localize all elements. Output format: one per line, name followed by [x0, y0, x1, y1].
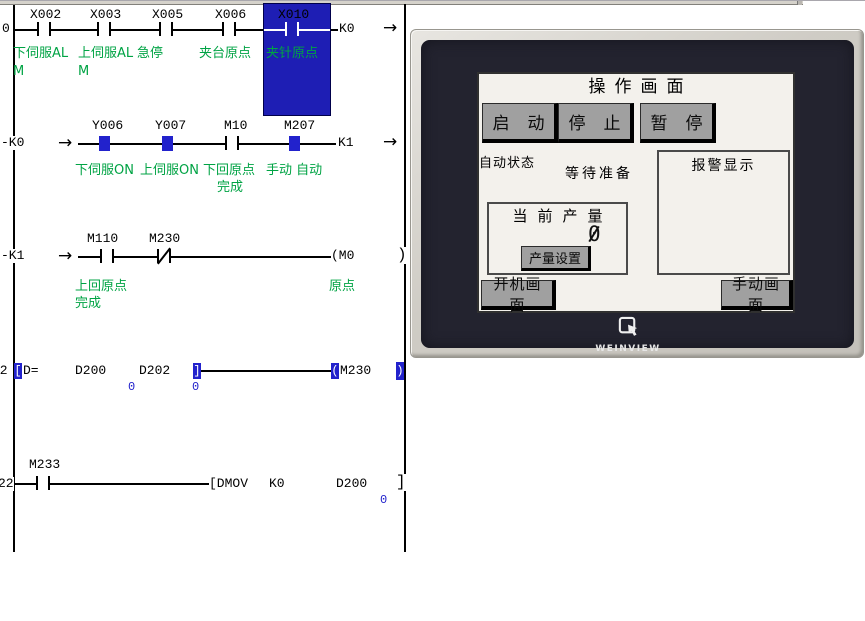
contact-nc-m230[interactable] — [157, 249, 171, 263]
toolbar-bottom-strip — [0, 1, 803, 5]
wire — [331, 29, 338, 31]
alarm-display-title: 报警显示 — [659, 155, 788, 175]
device-label: X010 — [278, 8, 309, 22]
contact-x002[interactable] — [37, 22, 51, 36]
start-button[interactable]: 启动 — [482, 103, 558, 143]
monitor-value: 0 — [380, 494, 387, 507]
contact-m10[interactable] — [225, 136, 239, 150]
coil-m0[interactable]: (M0 — [331, 249, 354, 263]
wire — [78, 256, 332, 258]
production-set-button[interactable]: 产量设置 — [521, 246, 591, 271]
weinview-logo-icon — [617, 316, 640, 339]
comment-label: 下回原点 — [203, 163, 255, 178]
monitor-value: 0 — [128, 381, 135, 394]
brand-logo: WEINVIEW — [568, 316, 688, 354]
coil-m230[interactable]: M230 — [340, 364, 371, 378]
brand-name: WEINVIEW — [568, 344, 688, 354]
device-label: M10 — [224, 119, 247, 133]
rung-number: 12 — [0, 364, 8, 378]
comment-label: M — [78, 64, 89, 79]
pointer-label: K1 — [338, 136, 354, 150]
comment-label: 上伺服ON — [140, 163, 199, 178]
comment-label: 上伺服AL — [78, 46, 133, 61]
monitor-value: 0 — [192, 381, 199, 394]
energized-contact-y006[interactable] — [99, 136, 110, 151]
operand: D200 — [75, 364, 106, 378]
operand: D202 — [139, 364, 170, 378]
comment-label: 手动 自动 — [266, 163, 322, 178]
status-value: 等待准备 — [565, 163, 633, 183]
comment-label: M — [13, 64, 24, 79]
stop-button[interactable]: 停止 — [558, 103, 634, 143]
wire — [201, 370, 331, 372]
rung-number: 22 — [0, 477, 14, 491]
rung-end-bracket: ] — [396, 474, 406, 491]
toolbar-tick — [797, 1, 802, 5]
contact-m110[interactable] — [100, 249, 114, 263]
pointer-label: K0 — [339, 22, 355, 36]
hmi-screen: 操作画面 启动 停止 暂停 自动状态 等待准备 报警显示 当前产量 0 产量设置… — [477, 72, 795, 313]
pointer-label: -K0 — [1, 136, 24, 150]
comment-label: 下伺服ON — [75, 163, 134, 178]
hmi-bezel: 操作画面 启动 停止 暂停 自动状态 等待准备 报警显示 当前产量 0 产量设置… — [421, 40, 854, 348]
coil-open-paren[interactable]: ( — [331, 363, 339, 379]
comment-label: 完成 — [217, 180, 243, 195]
comment-label: 上回原点 — [75, 279, 127, 294]
startup-screen-button[interactable]: 开机画面 — [481, 280, 556, 310]
alarm-display-box: 报警显示 — [657, 150, 790, 275]
continuation-arrow-icon: → — [58, 248, 72, 265]
comment-label: 夹台原点 — [199, 46, 251, 61]
device-label: M207 — [284, 119, 315, 133]
contact-x005[interactable] — [159, 22, 173, 36]
device-label: X006 — [215, 8, 246, 22]
contact-x010[interactable] — [285, 22, 299, 36]
rung-number: 0 — [2, 22, 10, 36]
screen-title: 操作画面 — [479, 78, 793, 96]
rung-end-bracket: ) — [397, 247, 407, 264]
hmi-panel: 操作画面 启动 停止 暂停 自动状态 等待准备 报警显示 当前产量 0 产量设置… — [410, 29, 864, 358]
contact-m233[interactable] — [36, 476, 50, 490]
pause-button[interactable]: 暂停 — [640, 103, 716, 143]
auto-status-label: 自动状态 — [479, 152, 535, 171]
rung-end-bracket: ) — [396, 362, 404, 380]
operand: K0 — [269, 477, 285, 491]
contact-x003[interactable] — [97, 22, 111, 36]
production-title: 当前产量 — [489, 205, 626, 226]
comment-label: 完成 — [75, 296, 101, 311]
device-label: X005 — [152, 8, 183, 22]
contact-x006[interactable] — [222, 22, 236, 36]
continuation-arrow-icon: → — [383, 134, 397, 151]
compare-open-bracket[interactable]: [ — [14, 363, 22, 379]
manual-screen-button[interactable]: 手动画面 — [721, 280, 793, 310]
device-label: M110 — [87, 232, 118, 246]
device-label: X003 — [90, 8, 121, 22]
left-power-rail — [13, 5, 15, 552]
energized-contact-m207[interactable] — [289, 136, 300, 151]
compare-close-bracket[interactable]: ] — [193, 363, 201, 379]
continuation-arrow-icon: → — [58, 135, 72, 152]
device-label: Y006 — [92, 119, 123, 133]
energized-contact-y007[interactable] — [162, 136, 173, 151]
right-boundary-rail — [404, 4, 406, 552]
production-value: 0 — [588, 224, 601, 245]
compare-mnemonic[interactable]: D= — [23, 364, 39, 378]
pointer-label: -K1 — [1, 249, 24, 263]
device-label: M230 — [149, 232, 180, 246]
operand: D200 — [336, 477, 367, 491]
dmov-instruction[interactable]: [DMOV — [209, 477, 248, 491]
production-box: 当前产量 0 产量设置 — [487, 202, 628, 275]
comment-label: 夹针原点 — [266, 46, 318, 61]
comment-label: 急停 — [137, 46, 163, 61]
continuation-arrow-icon: → — [383, 20, 397, 37]
device-label: M233 — [29, 458, 60, 472]
device-label: Y007 — [155, 119, 186, 133]
comment-label: 原点 — [329, 279, 355, 294]
comment-label: 下伺服AL — [13, 46, 68, 61]
device-label: X002 — [30, 8, 61, 22]
